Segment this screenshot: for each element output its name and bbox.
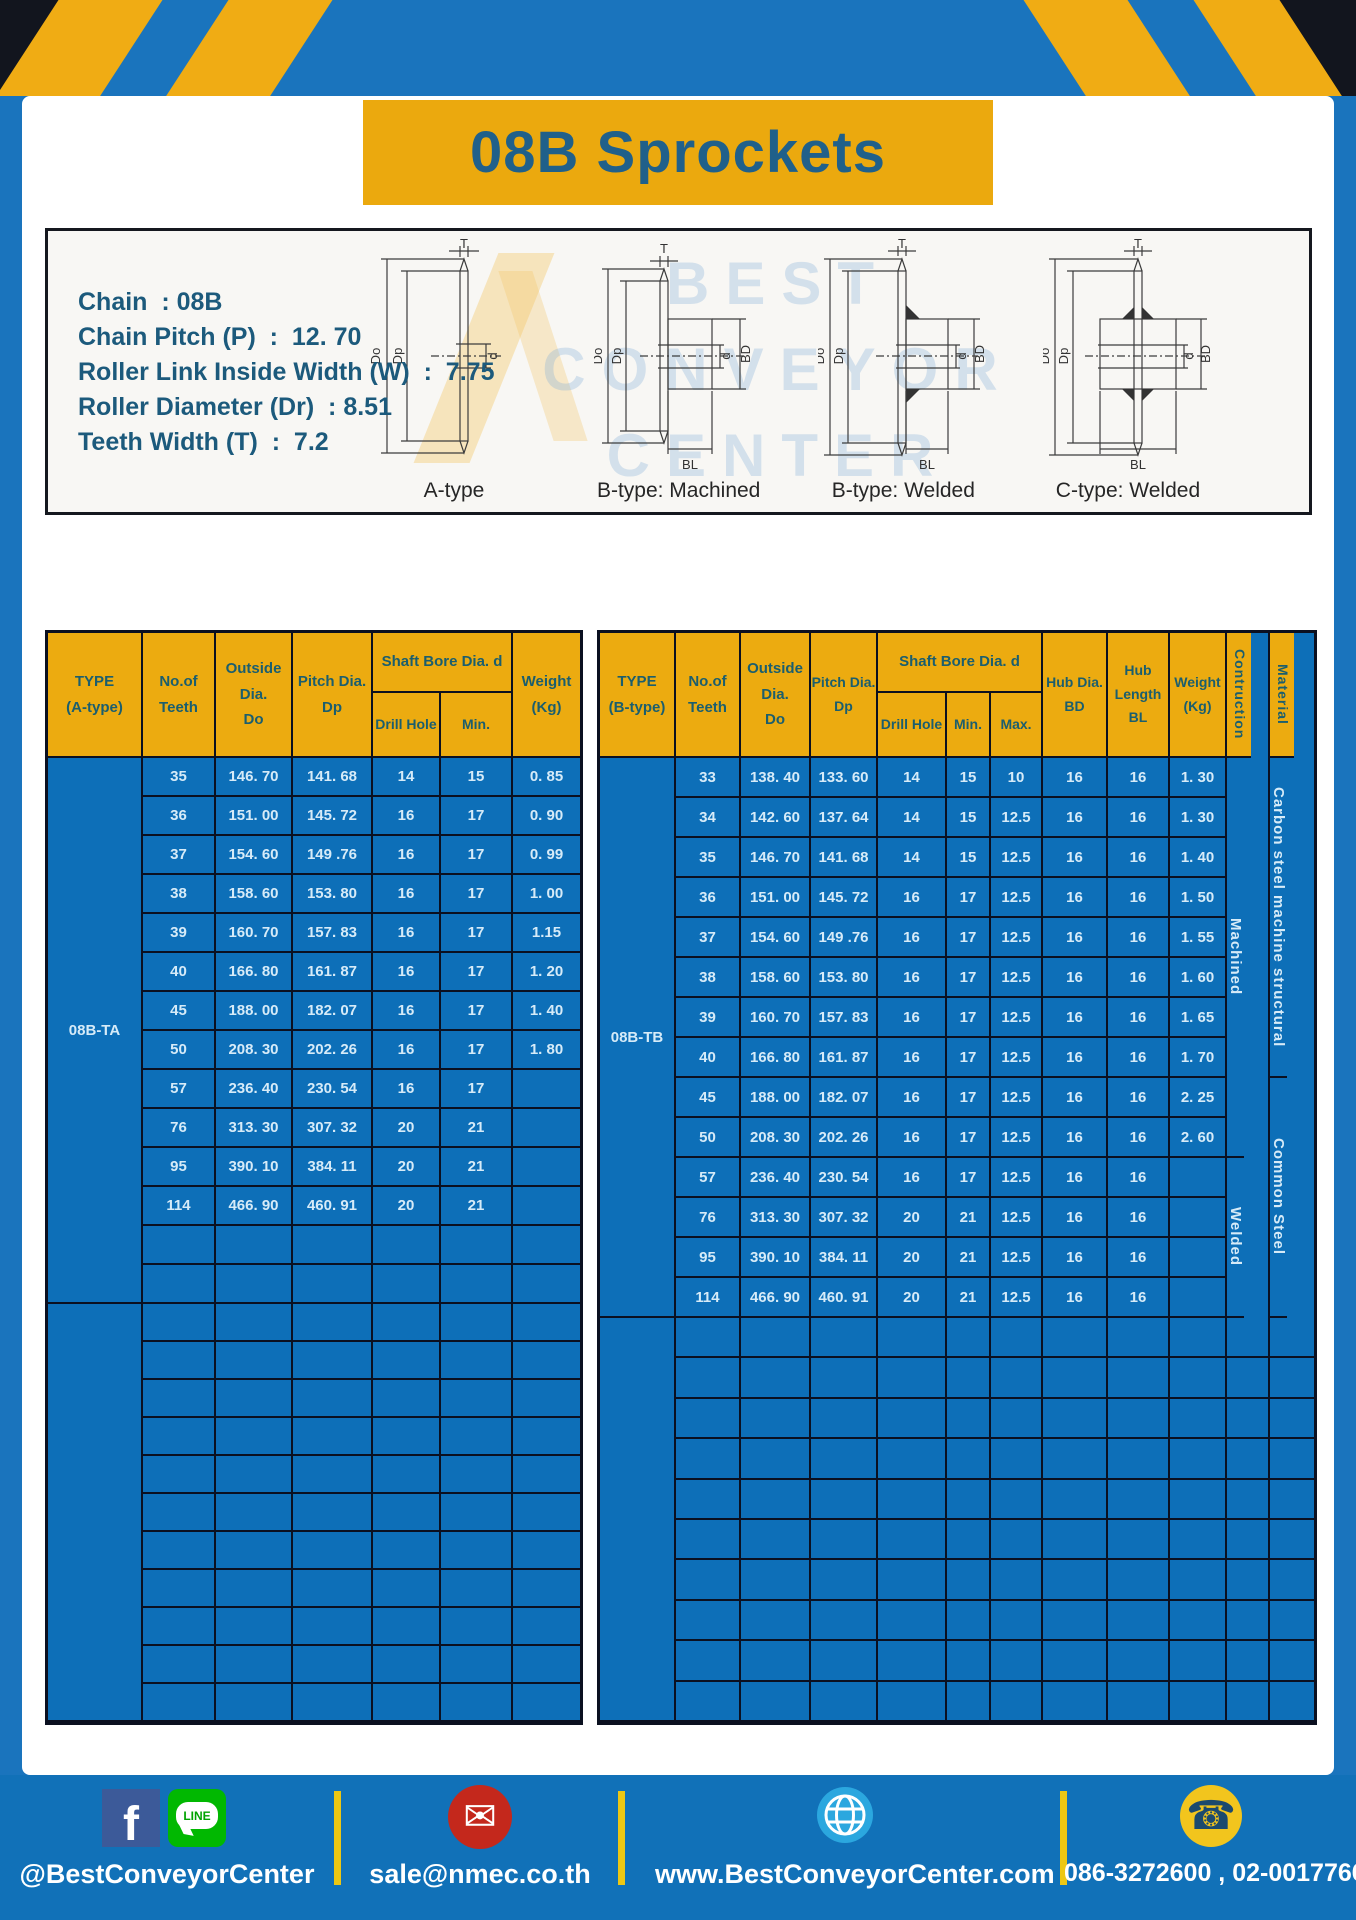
col-min: Min. 1515151717171717171717212121 [947,693,991,1722]
empty-cell [143,1570,214,1608]
weight-cell: 1. 30 [1170,758,1225,798]
header-type: TYPE (B-type) [600,633,674,758]
teeth-cell: 76 [676,1198,739,1238]
max-cell: 12.5 [991,1198,1041,1238]
empty-cell [513,1380,580,1418]
empty-cell [1108,1318,1168,1358]
max-cell: 12.5 [991,1158,1041,1198]
empty-cell [293,1570,371,1608]
empty-cell [373,1342,439,1380]
empty-cell [947,1480,989,1520]
pitch-dia-cell: 149 .76 [293,836,371,875]
hub-length-cell: 16 [1108,878,1168,918]
hub-length-cell: 16 [1108,958,1168,998]
empty-cell [1108,1601,1168,1641]
col-drill-hole: Drill Hole 141616161616161616202020 [373,693,441,1722]
empty-cell [676,1601,739,1641]
empty-cell [1227,1601,1268,1641]
outside-dia-cell: 313. 30 [216,1109,291,1148]
empty-cell [293,1226,371,1265]
empty-cell [143,1380,214,1418]
empty-cell [143,1418,214,1456]
footer-divider [618,1791,625,1885]
weight-cell: 1. 55 [1170,918,1225,958]
min-cell: 17 [441,992,511,1031]
empty-cell [441,1265,511,1304]
type-label-cell: 08B-TB [600,758,674,1318]
header-drill-hole: Drill Hole [878,693,945,758]
min-cell: 17 [947,918,989,958]
hub-dia-cell: 16 [1043,838,1106,878]
header-min: Min. [947,693,989,758]
empty-cell [1270,1439,1314,1479]
col-min: Min. 151717171717171717212121 [441,693,511,1722]
spec-line: Roller Diameter (Dr) : 8.51 [78,390,494,425]
outside-dia-cell: 313. 30 [741,1198,809,1238]
header-shaft-bore: Shaft Bore Dia. d [373,633,511,693]
weight-cell: 0. 85 [513,758,580,797]
pitch-dia-cell: 202. 26 [811,1118,876,1158]
hub-dia-cell: 16 [1043,878,1106,918]
empty-cell [216,1608,291,1646]
weight-cell: 1. 40 [1170,838,1225,878]
empty-cell [1270,1560,1314,1600]
outside-dia-cell: 151. 00 [741,878,809,918]
min-cell: 17 [947,1118,989,1158]
hub-length-cell: 16 [1108,1198,1168,1238]
drill-hole-cell: 16 [373,1031,439,1070]
empty-cell [441,1646,511,1684]
empty-cell [1270,1318,1314,1358]
spec-list: Chain : 08BChain Pitch (P) : 12. 70Rolle… [78,285,494,460]
svg-text:BL: BL [919,457,935,472]
empty-cell [1170,1520,1225,1560]
empty-cell [947,1439,989,1479]
weight-cell: 1.15 [513,914,580,953]
max-cell: 12.5 [991,1278,1041,1318]
empty-cell [373,1380,439,1418]
teeth-cell: 39 [143,914,214,953]
min-cell: 21 [947,1238,989,1278]
empty-cell [373,1226,439,1265]
empty-cell [811,1601,876,1641]
empty-cell [293,1646,371,1684]
empty-cell [1170,1601,1225,1641]
empty-cell [1170,1560,1225,1600]
empty-cell [143,1456,214,1494]
empty-cell [741,1358,809,1398]
svg-text:Dp: Dp [609,348,624,365]
type-empty-cell [48,1304,141,1722]
empty-cell [741,1520,809,1560]
empty-cell [513,1646,580,1684]
empty-cell [1170,1439,1225,1479]
line-icon[interactable]: LINE [168,1789,226,1847]
empty-cell [878,1439,945,1479]
empty-cell [676,1480,739,1520]
weight-cell [513,1148,580,1187]
pitch-dia-cell: 153. 80 [293,875,371,914]
pitch-dia-cell: 307. 32 [811,1198,876,1238]
hub-dia-cell: 16 [1043,1198,1106,1238]
drill-hole-cell: 20 [373,1109,439,1148]
weight-cell: 1. 30 [1170,798,1225,838]
col-teeth: No.of Teeth 3536373839404550577695114 [143,633,216,1722]
teeth-cell: 40 [676,1038,739,1078]
max-cell: 12.5 [991,878,1041,918]
empty-cell [293,1304,371,1342]
empty-cell [1270,1682,1314,1722]
empty-cell [811,1560,876,1600]
outside-dia-cell: 158. 60 [741,958,809,998]
min-cell: 21 [947,1278,989,1318]
empty-cell [1227,1358,1268,1398]
empty-cell [513,1532,580,1570]
header-type: TYPE (A-type) [48,633,141,758]
empty-cell [216,1570,291,1608]
phone-icon[interactable]: ☎ [1180,1785,1242,1847]
empty-cell [1270,1480,1314,1520]
spec-line: Roller Link Inside Width (W) : 7.75 [78,355,494,390]
outside-dia-cell: 142. 60 [741,798,809,838]
type-empty-cell [600,1318,674,1722]
empty-cell [513,1570,580,1608]
empty-cell [878,1601,945,1641]
outside-dia-cell: 151. 00 [216,797,291,836]
col-outside-dia: Outside Dia. Do 146. 70151. 00154. 60158… [216,633,293,1722]
email-icon[interactable]: ✉ [448,1785,512,1849]
header-material: Material [1270,633,1294,758]
line-bubble: LINE [176,1802,218,1829]
hub-length-cell: 16 [1108,1278,1168,1318]
header-pitch-dia: Pitch Dia. Dp [811,633,876,758]
phone-numbers[interactable]: 086-3272600 , 02-0017766 [1064,1859,1356,1888]
empty-cell [1108,1358,1168,1398]
empty-cell [293,1342,371,1380]
empty-cell [676,1318,739,1358]
empty-cell [441,1532,511,1570]
title-box: 08B Sprockets [363,100,993,205]
svg-text:BL: BL [682,457,698,472]
empty-cell [293,1380,371,1418]
facebook-icon[interactable]: f [102,1789,160,1847]
hub-length-cell: 16 [1108,1238,1168,1278]
diagram-b-type-machined: Do Dp d BD T [591,239,767,503]
drill-hole-cell: 20 [878,1238,945,1278]
min-cell: 17 [441,953,511,992]
outside-dia-cell: 154. 60 [216,836,291,875]
drill-hole-cell: 16 [878,958,945,998]
hub-length-cell: 16 [1108,838,1168,878]
weight-cell: 1. 50 [1170,878,1225,918]
drill-hole-cell: 16 [878,1158,945,1198]
svg-text:Dp: Dp [1056,348,1071,365]
drill-hole-cell: 16 [878,1078,945,1118]
empty-cell [513,1342,580,1380]
drill-hole-cell: 16 [373,797,439,836]
header-outside-dia: Outside Dia. Do [741,633,809,758]
outside-dia-cell: 188. 00 [216,992,291,1031]
hub-length-cell: 16 [1108,918,1168,958]
header-hub-dia: Hub Dia. BD [1043,633,1106,758]
drill-hole-cell: 14 [878,758,945,798]
drill-hole-cell: 16 [373,1070,439,1109]
empty-cell [216,1532,291,1570]
outside-dia-cell: 166. 80 [741,1038,809,1078]
svg-text:BD: BD [972,345,987,363]
outside-dia-cell: 236. 40 [741,1158,809,1198]
col-type: TYPE (B-type) 08B-TB [600,633,676,1722]
drill-hole-cell: 14 [878,838,945,878]
empty-cell [1108,1560,1168,1600]
empty-cell [441,1456,511,1494]
hub-dia-cell: 16 [1043,1118,1106,1158]
weight-cell: 1. 00 [513,875,580,914]
empty-cell [676,1682,739,1722]
empty-cell [143,1226,214,1265]
empty-cell [1108,1439,1168,1479]
teeth-cell: 45 [676,1078,739,1118]
teeth-cell: 57 [676,1158,739,1198]
teeth-cell: 114 [143,1187,214,1226]
outside-dia-cell: 146. 70 [741,838,809,878]
empty-cell [676,1358,739,1398]
empty-cell [878,1318,945,1358]
drill-hole-cell: 14 [878,798,945,838]
empty-cell [741,1318,809,1358]
empty-cell [513,1608,580,1646]
outside-dia-cell: 166. 80 [216,953,291,992]
teeth-cell: 114 [676,1278,739,1318]
pitch-dia-cell: 460. 91 [811,1278,876,1318]
teeth-cell: 38 [143,875,214,914]
max-cell: 10 [991,758,1041,798]
teeth-cell: 37 [676,918,739,958]
empty-cell [441,1304,511,1342]
weight-cell [513,1187,580,1226]
min-cell: 15 [947,838,989,878]
col-type: TYPE (A-type) 08B-TA [48,633,143,1722]
empty-cell [293,1265,371,1304]
empty-cell [947,1318,989,1358]
empty-cell [373,1304,439,1342]
hub-dia-cell: 16 [1043,1238,1106,1278]
empty-cell [1227,1439,1268,1479]
pitch-dia-cell: 161. 87 [811,1038,876,1078]
pitch-dia-cell: 157. 83 [811,998,876,1038]
pitch-dia-cell: 145. 72 [811,878,876,918]
hub-dia-cell: 16 [1043,1038,1106,1078]
teeth-cell: 50 [143,1031,214,1070]
pitch-dia-cell: 230. 54 [293,1070,371,1109]
empty-cell [513,1265,580,1304]
empty-cell [513,1684,580,1722]
email-address[interactable]: sale@nmec.co.th [360,1859,600,1890]
teeth-cell: 57 [143,1070,214,1109]
empty-cell [216,1418,291,1456]
social-handle[interactable]: @BestConveyorCenter [0,1859,334,1890]
empty-cell [513,1418,580,1456]
top-band [0,0,1356,96]
type-label-cell: 08B-TA [48,758,141,1304]
header-teeth: No.of Teeth [676,633,739,758]
col-weight: Weight (Kg) 1. 301. 301. 401. 501. 551. … [1170,633,1227,1722]
empty-cell [947,1682,989,1722]
empty-cell [373,1456,439,1494]
drill-hole-cell: 20 [373,1148,439,1187]
globe-icon[interactable] [815,1785,875,1845]
empty-cell [878,1682,945,1722]
empty-cell [293,1684,371,1722]
b-type-machined-drawing: Do Dp d BD T [594,239,764,474]
empty-cell [676,1560,739,1600]
empty-cell [676,1641,739,1681]
hub-length-cell: 16 [1108,998,1168,1038]
empty-cell [216,1265,291,1304]
outside-dia-cell: 390. 10 [741,1238,809,1278]
min-cell: 21 [441,1109,511,1148]
teeth-cell: 36 [143,797,214,836]
empty-cell [216,1342,291,1380]
empty-cell [373,1570,439,1608]
empty-cell [1043,1439,1106,1479]
svg-text:BD: BD [738,345,753,363]
empty-cell [811,1358,876,1398]
empty-cell [947,1399,989,1439]
empty-cell [811,1480,876,1520]
min-cell: 15 [441,758,511,797]
svg-text:Dp: Dp [831,348,846,365]
empty-cell [143,1265,214,1304]
spec-line: Chain Pitch (P) : 12. 70 [78,320,494,355]
min-cell: 21 [947,1198,989,1238]
c-type-welded-drawing: Do Dp d BD [1043,239,1213,474]
hub-length-cell: 16 [1108,1158,1168,1198]
svg-text:T: T [660,241,668,256]
construction-welded-cell: Welded [1227,1158,1244,1318]
diagram-label: B-type: Machined [591,479,767,503]
empty-cell [441,1608,511,1646]
empty-cell [293,1418,371,1456]
svg-text:T: T [1134,239,1142,251]
empty-cell [216,1226,291,1265]
empty-cell [1270,1601,1314,1641]
empty-cell [513,1304,580,1342]
min-cell: 17 [947,1158,989,1198]
empty-cell [1108,1520,1168,1560]
empty-cell [1170,1318,1225,1358]
min-cell: 17 [441,797,511,836]
header-construction: Contruction [1227,633,1251,758]
outside-dia-cell: 160. 70 [216,914,291,953]
col-teeth: No.of Teeth 3334353637383940455057769511… [676,633,741,1722]
empty-cell [676,1439,739,1479]
drill-hole-cell: 20 [878,1198,945,1238]
empty-cell [441,1418,511,1456]
svg-text:Do: Do [594,348,605,365]
outside-dia-cell: 138. 40 [741,758,809,798]
teeth-cell: 39 [676,998,739,1038]
empty-cell [991,1560,1041,1600]
hub-dia-cell: 16 [1043,998,1106,1038]
empty-cell [991,1641,1041,1681]
max-cell: 12.5 [991,1238,1041,1278]
drill-hole-cell: 16 [878,878,945,918]
teeth-cell: 95 [143,1148,214,1187]
outside-dia-cell: 146. 70 [216,758,291,797]
footer-divider [334,1791,341,1885]
empty-cell [991,1439,1041,1479]
empty-cell [811,1318,876,1358]
empty-cell [293,1494,371,1532]
empty-cell [811,1439,876,1479]
diagram-b-type-welded: Do Dp d BD [815,239,991,503]
empty-cell [741,1601,809,1641]
hub-dia-cell: 16 [1043,1078,1106,1118]
pitch-dia-cell: 149 .76 [811,918,876,958]
drill-hole-cell: 16 [373,875,439,914]
empty-cell [878,1358,945,1398]
weight-cell: 2. 25 [1170,1078,1225,1118]
col-weight: Weight (Kg) 0. 850. 900. 991. 001.151. 2… [513,633,580,1722]
a-type-table: TYPE (A-type) 08B-TA No.of Teeth 3536373… [45,630,583,1725]
empty-cell [513,1226,580,1265]
drill-hole-cell: 16 [373,953,439,992]
empty-cell [216,1494,291,1532]
header-hub-length: Hub Length BL [1108,633,1168,758]
material-common-steel-cell: Common Steel [1270,1078,1287,1318]
pitch-dia-cell: 230. 54 [811,1158,876,1198]
website-url[interactable]: www.BestConveyorCenter.com [655,1859,1035,1890]
yellow-stripe [144,0,352,96]
pitch-dia-cell: 161. 87 [293,953,371,992]
min-cell: 17 [441,836,511,875]
drill-hole-cell: 20 [878,1278,945,1318]
empty-cell [676,1520,739,1560]
empty-cell [143,1608,214,1646]
min-cell: 21 [441,1187,511,1226]
col-pitch-dia: Pitch Dia. Dp 141. 68145. 72149 .76153. … [293,633,373,1722]
svg-text:Do: Do [1043,348,1052,365]
header-teeth: No.of Teeth [143,633,214,758]
empty-cell [373,1265,439,1304]
weight-cell: 1. 70 [1170,1038,1225,1078]
pitch-dia-cell: 157. 83 [293,914,371,953]
empty-cell [513,1494,580,1532]
empty-cell [441,1380,511,1418]
empty-cell [741,1480,809,1520]
empty-cell [441,1684,511,1722]
empty-cell [216,1684,291,1722]
empty-cell [947,1358,989,1398]
empty-cell [947,1520,989,1560]
empty-cell [143,1304,214,1342]
header-shaft-bore: Shaft Bore Dia. d [878,633,1041,693]
empty-cell [741,1641,809,1681]
empty-cell [143,1532,214,1570]
header-pitch-dia: Pitch Dia. Dp [293,633,371,758]
weight-cell [1170,1198,1225,1238]
hub-length-cell: 16 [1108,1118,1168,1158]
teeth-cell: 76 [143,1109,214,1148]
empty-cell [1227,1560,1268,1600]
col-outside-dia: Outside Dia. Do 138. 40142. 60146. 70151… [741,633,811,1722]
empty-cell [1170,1358,1225,1398]
empty-cell [811,1399,876,1439]
pitch-dia-cell: 384. 11 [811,1238,876,1278]
hub-dia-cell: 16 [1043,798,1106,838]
empty-cell [676,1399,739,1439]
